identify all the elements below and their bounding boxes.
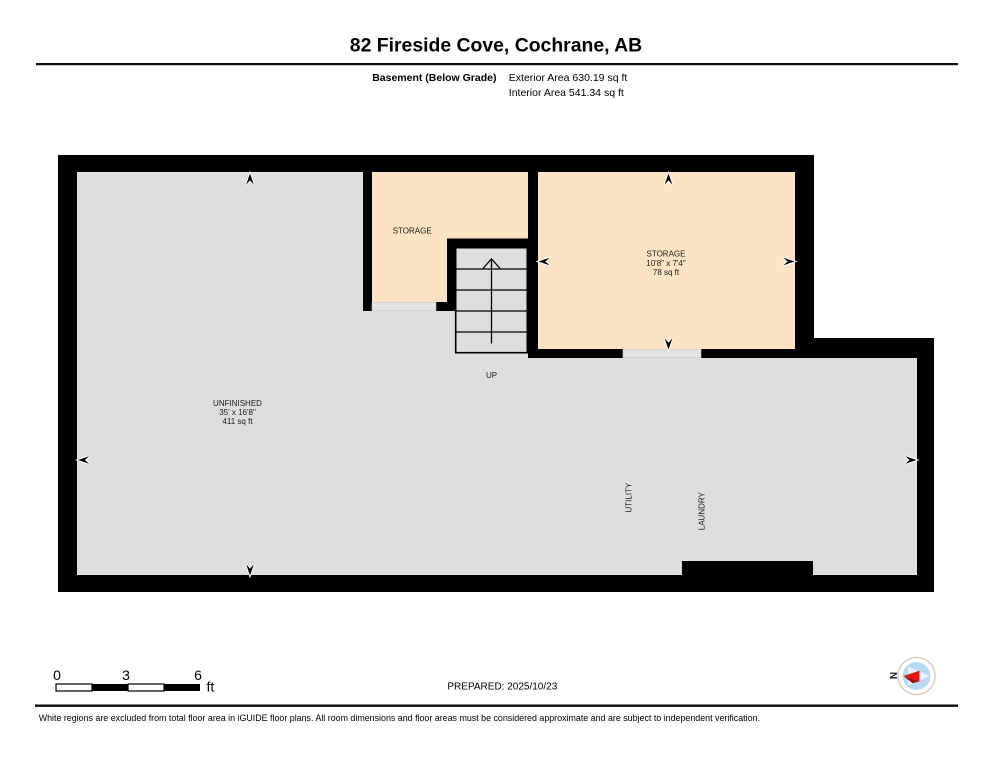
svg-text:82 Fireside Cove, Cochrane, AB: 82 Fireside Cove, Cochrane, AB — [350, 35, 642, 57]
svg-text:10'8" x 7'4": 10'8" x 7'4" — [646, 259, 686, 268]
svg-text:3: 3 — [122, 667, 130, 683]
svg-text:78 sq ft: 78 sq ft — [653, 268, 680, 277]
svg-text:STORAGE: STORAGE — [393, 227, 432, 236]
svg-text:6: 6 — [194, 667, 202, 683]
svg-text:Exterior Area 630.19 sq ft: Exterior Area 630.19 sq ft — [509, 72, 628, 84]
svg-text:0: 0 — [53, 667, 61, 683]
svg-text:Interior Area 541.34 sq ft: Interior Area 541.34 sq ft — [509, 87, 624, 99]
svg-text:STORAGE: STORAGE — [647, 250, 686, 259]
svg-text:ft: ft — [207, 679, 215, 695]
svg-text:411 sq ft: 411 sq ft — [222, 417, 253, 426]
svg-text:35' x 16'8": 35' x 16'8" — [219, 408, 256, 417]
svg-text:PREPARED: 2025/10/23: PREPARED: 2025/10/23 — [447, 682, 557, 693]
svg-text:UTILITY: UTILITY — [625, 482, 634, 512]
svg-text:UP: UP — [486, 371, 497, 380]
svg-text:White regions are excluded fro: White regions are excluded from total fl… — [39, 713, 760, 723]
svg-text:LAUNDRY: LAUNDRY — [698, 491, 707, 530]
svg-text:Basement (Below Grade): Basement (Below Grade) — [372, 72, 496, 84]
svg-text:UNFINISHED: UNFINISHED — [213, 399, 262, 408]
svg-text:N: N — [889, 672, 900, 679]
